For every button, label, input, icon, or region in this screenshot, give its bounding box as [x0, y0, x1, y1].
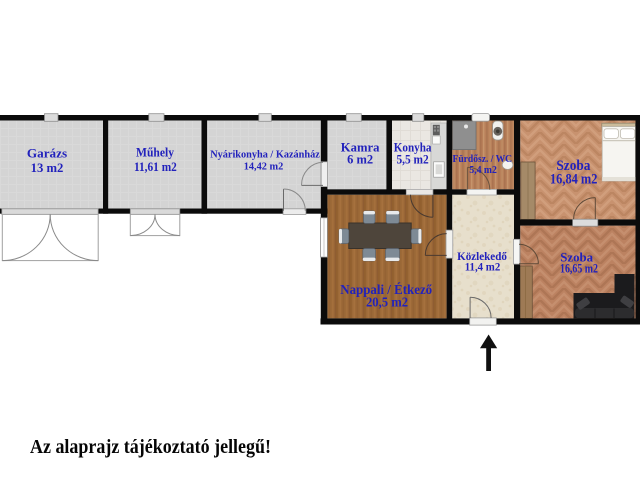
svg-text:Műhely: Műhely: [136, 146, 175, 160]
svg-text:11,61 m2: 11,61 m2: [134, 160, 177, 174]
svg-text:6 m2: 6 m2: [347, 152, 373, 167]
svg-text:14,42 m2: 14,42 m2: [244, 162, 284, 173]
svg-text:Nyárikonyha / Kazánház: Nyárikonyha / Kazánház: [210, 150, 320, 161]
svg-text:20,5 m2: 20,5 m2: [366, 296, 408, 311]
svg-text:Az alaprajz tájékoztató jelleg: Az alaprajz tájékoztató jellegű!: [30, 437, 271, 458]
svg-text:Garázs: Garázs: [27, 146, 67, 161]
svg-text:11,4 m2: 11,4 m2: [465, 259, 501, 273]
svg-text:16,65 m2: 16,65 m2: [560, 261, 598, 275]
svg-text:5,5 m2: 5,5 m2: [396, 152, 428, 167]
svg-text:5,4 m2: 5,4 m2: [469, 164, 497, 176]
svg-text:13 m2: 13 m2: [31, 160, 64, 175]
svg-text:16,84 m2: 16,84 m2: [550, 171, 597, 187]
